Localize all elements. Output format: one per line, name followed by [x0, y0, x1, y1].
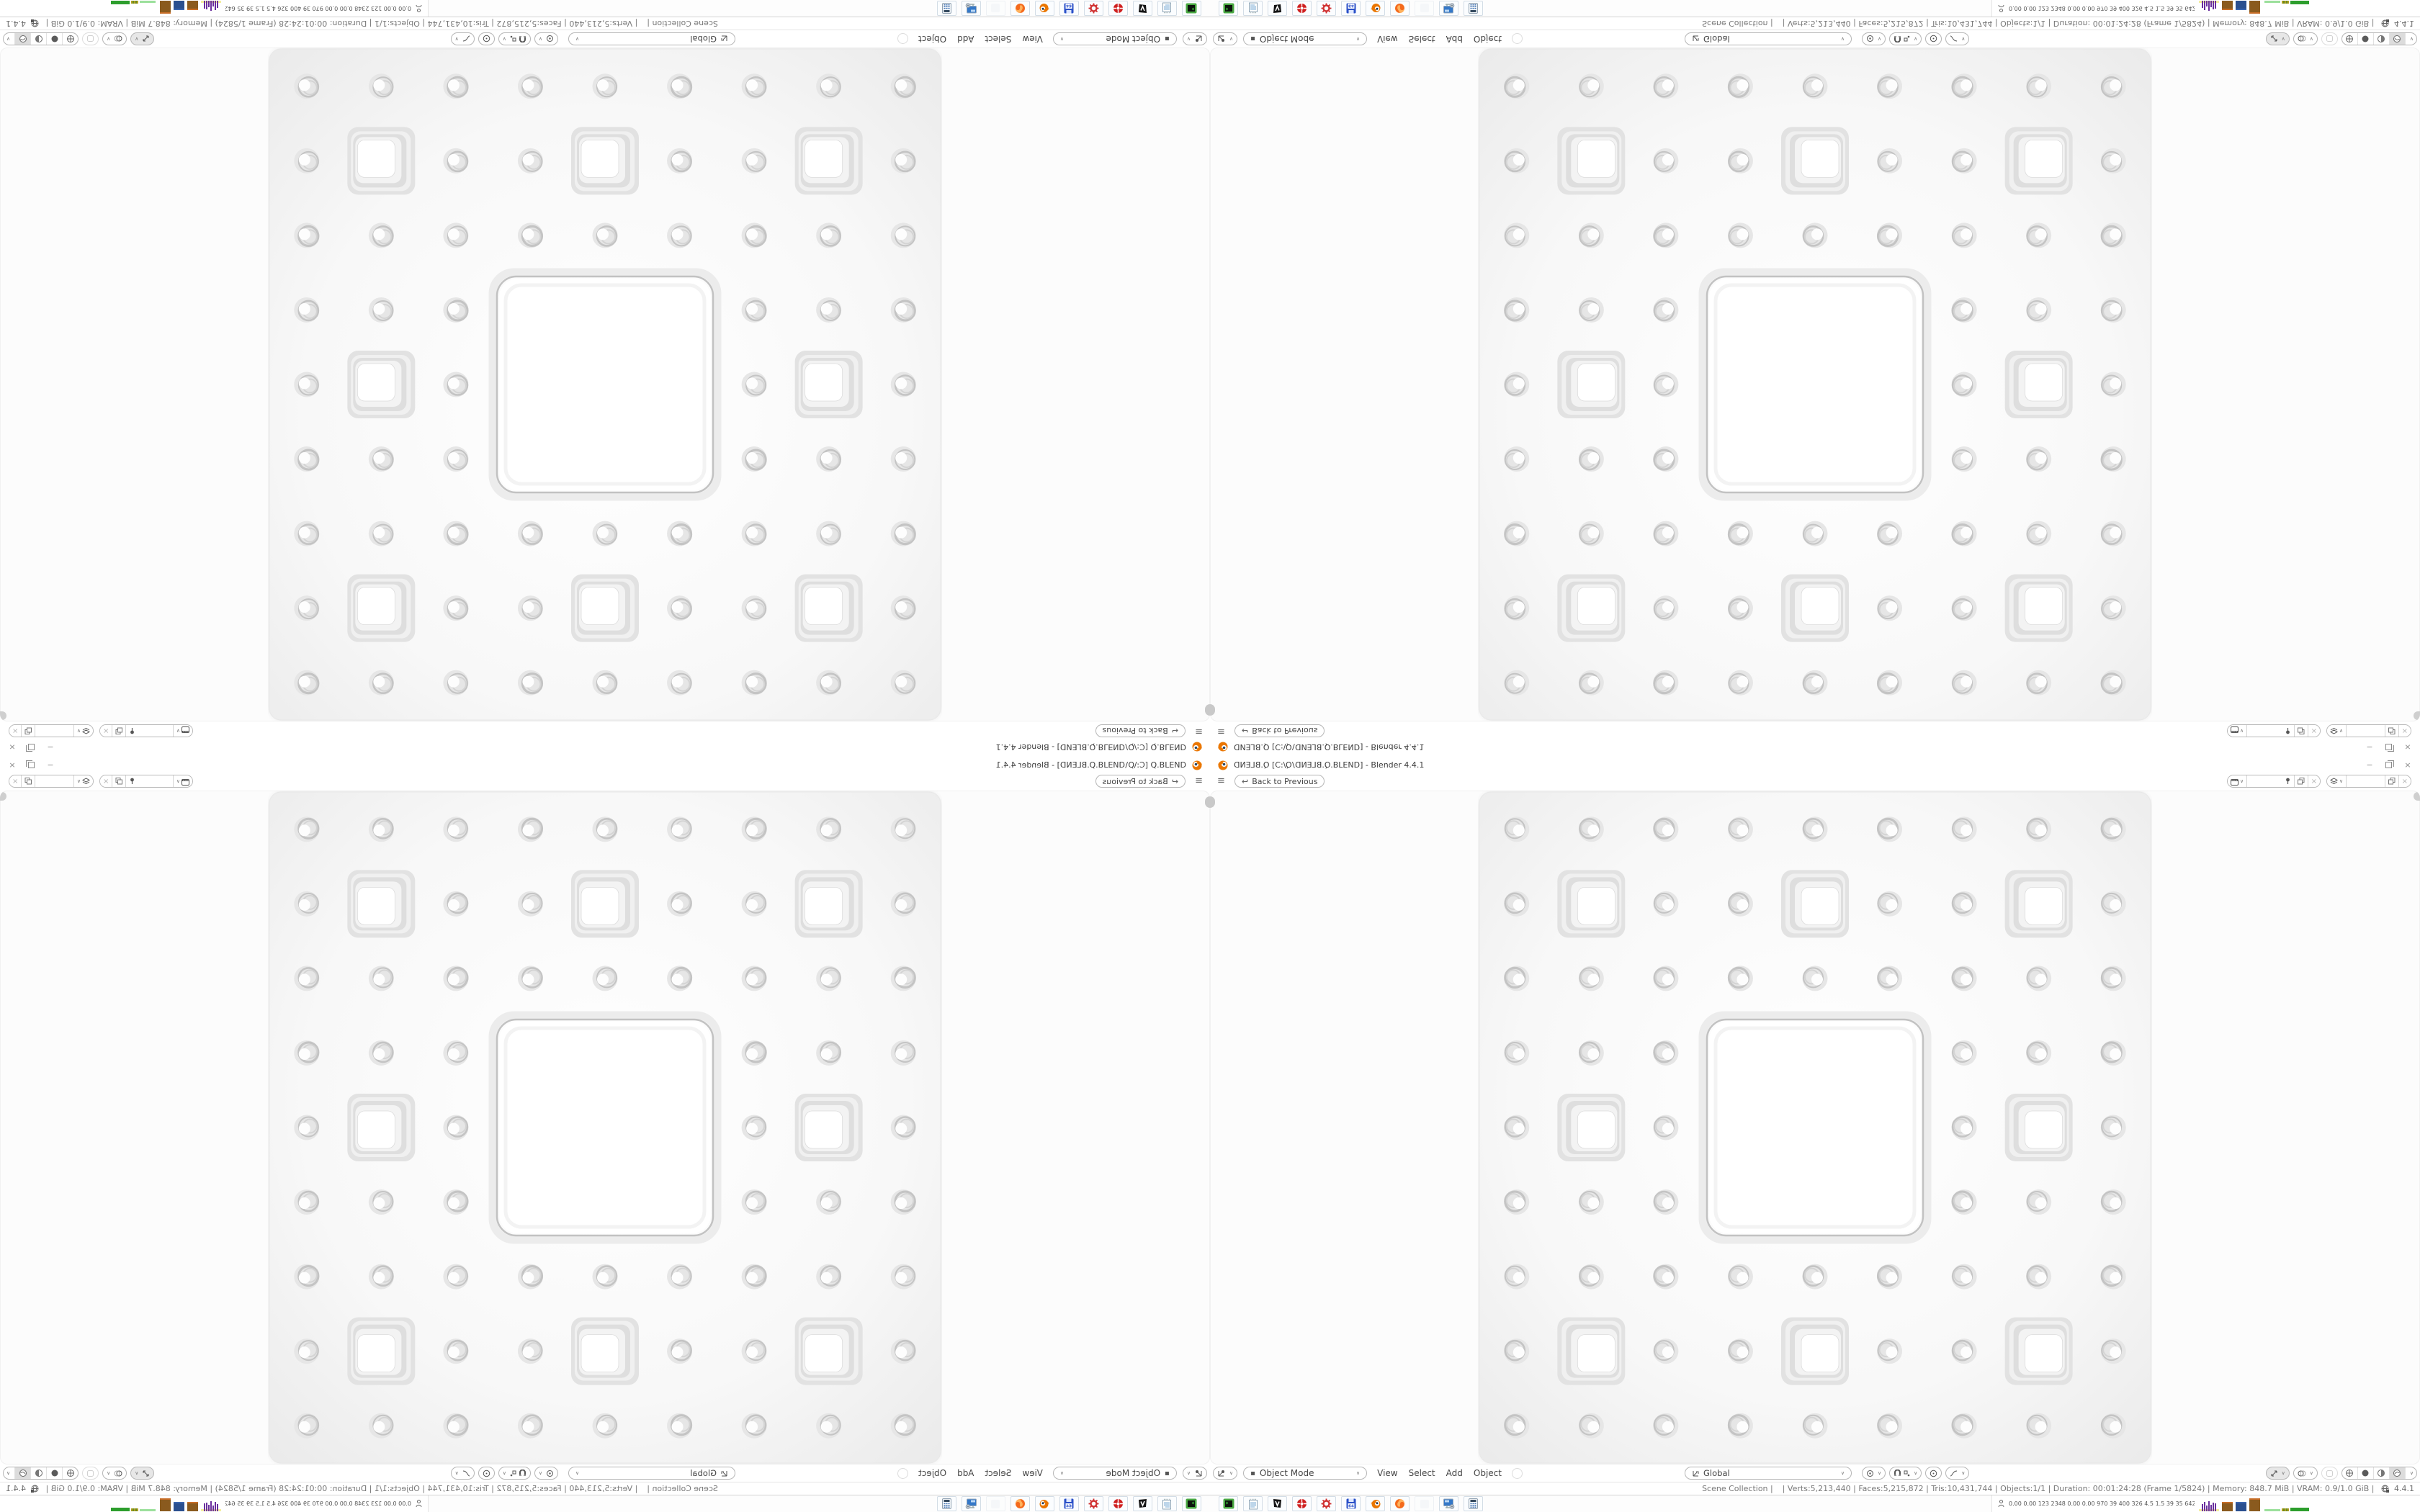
- taskbar-launcher-ghost[interactable]: [986, 1, 1005, 16]
- toolbar-collapse-handle[interactable]: [1205, 704, 1210, 716]
- shading-solid-button[interactable]: [2358, 1467, 2374, 1480]
- viewlayer-delete-button[interactable]: ×: [2399, 725, 2411, 737]
- proportional-editing-toggle[interactable]: [1925, 32, 1942, 45]
- taskbar-launcher-terminal[interactable]: [1219, 1, 1238, 16]
- taskbar-launcher-red-badge[interactable]: [1108, 1496, 1128, 1511]
- viewlayer-delete-button[interactable]: ×: [9, 775, 21, 787]
- mirrored-screenshot-composite: Q.BLEND [C:\Q\Q.BLEND.BLEND] - Blender 4…: [0, 0, 2420, 1512]
- viewlayer-copy-button[interactable]: [2385, 725, 2399, 737]
- mode-dropdown[interactable]: ▪ Object Mode ∨: [1053, 1467, 1177, 1480]
- title-dir-mirrored: Q: [1128, 743, 1134, 752]
- scene-selector: ∨ ×: [2227, 724, 2321, 737]
- 3d-viewport[interactable]: [0, 791, 1210, 1464]
- viewlayer-browse-button[interactable]: ∨: [73, 725, 93, 737]
- system-monitor-applet: 0.00 0.00 123 2348 0.00 0.00 970 39 400 …: [0, 1495, 429, 1512]
- viewlayer-browse-button[interactable]: ∨: [2327, 775, 2347, 787]
- proportional-falloff-dropdown[interactable]: ∨: [1945, 32, 1969, 45]
- viewlayer-icon: [82, 778, 90, 786]
- pivot-point-dropdown[interactable]: ∨: [1862, 32, 1886, 45]
- taskbar-launcher-calculator[interactable]: [1464, 1, 1483, 16]
- window-title: Q.BLEND [C:\Q\Q.BLEND.BLEND] - Blender 4…: [1234, 760, 1424, 770]
- sidebar-collapse-handle[interactable]: [2414, 792, 2420, 801]
- back-to-previous-button[interactable]: ↩ Back to Previous: [1234, 775, 1325, 788]
- scene-copy-button[interactable]: [112, 725, 125, 737]
- swap-bar: [174, 1, 184, 11]
- viewport-header: ∨ ▪ Object Mode ∨ View Select Add Object…: [1210, 1464, 2420, 1482]
- scene-browse-button[interactable]: ∨: [173, 725, 192, 737]
- snap-dropdown[interactable]: ∨: [498, 1467, 531, 1480]
- taskbar-launcher-floppy-64[interactable]: 64: [1341, 1496, 1361, 1511]
- snap-dropdown[interactable]: ∨: [498, 32, 531, 45]
- scene-icon: [181, 727, 189, 735]
- close-icon: ×: [103, 778, 109, 786]
- editor-type-button[interactable]: ∨: [1213, 1467, 1237, 1480]
- pivot-point-dropdown[interactable]: ∨: [534, 32, 558, 45]
- os-taskbar: 64 0.00 0.00 123 2348 0.00 0.00 970 39 4…: [1210, 1495, 2420, 1512]
- snap-target-icon: [510, 36, 516, 42]
- tool-circle-icon[interactable]: [897, 1468, 908, 1479]
- close-button[interactable]: ×: [2403, 743, 2413, 752]
- shading-rendered-button[interactable]: [14, 32, 30, 45]
- taskbar-launcher-notepad[interactable]: [1157, 1496, 1177, 1511]
- title-file2-mirrored: Q.BLEND: [1090, 760, 1125, 770]
- orientation-axis-icon: [1692, 1470, 1700, 1477]
- select-menu[interactable]: Select: [1409, 1468, 1435, 1478]
- blender-logo-icon: [1217, 759, 1229, 770]
- pivot-icon: [1866, 1470, 1874, 1477]
- scene-name-field[interactable]: [2247, 775, 2294, 787]
- show-overlays-dropdown[interactable]: ∨: [102, 1467, 127, 1480]
- minimize-button[interactable]: −: [45, 743, 55, 752]
- copy-icon: [24, 727, 32, 734]
- cpu-history-graph: [201, 1497, 221, 1511]
- viewlayer-name-field[interactable]: [35, 775, 73, 787]
- taskbar-launcher-notepad[interactable]: [1243, 1, 1263, 16]
- window-titlebar: Q.BLEND [C:\Q\Q.BLEND.BLEND] - Blender 4…: [1210, 756, 2420, 773]
- shading-material-button[interactable]: [2374, 1467, 2390, 1480]
- screen-copy-bottom-left: Q.BLEND [C:\Q\Q.BLEND.BLEND] - Blender 4…: [0, 756, 1210, 1512]
- taskbar-launcher-red-badge[interactable]: [1292, 1, 1312, 16]
- scene-delete-button[interactable]: ×: [2308, 725, 2320, 737]
- pin-icon[interactable]: [2285, 727, 2291, 734]
- shading-material-button[interactable]: [2374, 32, 2390, 45]
- screen-copy-bottom-right: Q.BLEND [C:\Q\Q.BLEND.BLEND] - Blender 4…: [1210, 756, 2420, 1512]
- show-overlays-dropdown[interactable]: ∨: [2293, 1467, 2318, 1480]
- user-icon: [416, 1500, 422, 1508]
- editor-type-button[interactable]: ∨: [1183, 32, 1207, 45]
- sidebar-collapse-handle[interactable]: [2414, 711, 2420, 720]
- viewlayer-copy-button[interactable]: [2385, 775, 2399, 787]
- 3d-viewport[interactable]: [1210, 791, 2420, 1464]
- add-menu[interactable]: Add: [1446, 1468, 1463, 1478]
- topbar-menu-icon[interactable]: ≡: [1217, 726, 1225, 737]
- scene-stats: | Verts:5,213,440 | Faces:5,215,872 | Tr…: [1780, 1484, 2377, 1493]
- mode-dropdown[interactable]: ▪ Object Mode ∨: [1243, 1467, 1367, 1480]
- snap-dropdown[interactable]: ∨: [1889, 1467, 1922, 1480]
- scene-copy-button[interactable]: [2295, 775, 2308, 787]
- close-icon: ×: [12, 727, 18, 735]
- network-globe-icon: [30, 19, 39, 28]
- close-button[interactable]: ×: [2403, 760, 2413, 770]
- viewport-header: ∨ ▪ Object Mode ∨ View Select Add Object…: [0, 1464, 1210, 1482]
- 3d-viewport[interactable]: [0, 48, 1210, 721]
- proportional-falloff-dropdown[interactable]: ∨: [451, 1467, 475, 1480]
- taskbar-launcher-terminal[interactable]: [1182, 1496, 1201, 1511]
- tool-circle-icon[interactable]: [897, 34, 908, 45]
- view-menu[interactable]: View: [1022, 34, 1042, 44]
- restore-button[interactable]: [28, 744, 35, 751]
- svg-text:64: 64: [1067, 3, 1072, 7]
- magnet-icon: [519, 1470, 526, 1477]
- falloff-curve-icon: [1950, 35, 1958, 43]
- scene-selector: ∨ ×: [2227, 775, 2321, 788]
- gizmo-icon: [142, 1470, 150, 1477]
- show-overlays-dropdown[interactable]: ∨: [102, 32, 127, 45]
- memory-bar: [2222, 1502, 2233, 1511]
- status-bar: Scene Collection | | Verts:5,213,440 | F…: [0, 17, 1210, 30]
- viewlayer-copy-button[interactable]: [21, 775, 35, 787]
- scene-name-field[interactable]: [125, 775, 172, 787]
- shading-rendered-button[interactable]: [2390, 1467, 2406, 1480]
- close-icon: ×: [2402, 727, 2408, 735]
- proportional-falloff-dropdown[interactable]: ∨: [1945, 1467, 1969, 1480]
- editor-type-button[interactable]: ∨: [1183, 1467, 1207, 1480]
- shading-mode-group: ∨: [2341, 1467, 2417, 1480]
- cpu-history-graph: [2199, 1497, 2219, 1511]
- scene-browse-button[interactable]: ∨: [2228, 775, 2247, 787]
- xray-icon: [2326, 1470, 2334, 1477]
- show-gizmo-dropdown[interactable]: ∨: [2266, 32, 2290, 45]
- shading-mode-group: ∨: [3, 1467, 79, 1480]
- select-menu[interactable]: Select: [1409, 34, 1435, 44]
- viewlayer-icon: [2330, 727, 2338, 735]
- select-menu[interactable]: Select: [985, 1468, 1011, 1478]
- viewlayer-delete-button[interactable]: ×: [9, 725, 21, 737]
- scene-name-field[interactable]: [125, 725, 172, 737]
- add-menu[interactable]: Add: [957, 1468, 974, 1478]
- magnet-icon: [1894, 1470, 1901, 1477]
- taskbar-launcher-calculator[interactable]: [937, 1, 956, 16]
- overlays-icon: [2298, 1470, 2306, 1477]
- monitor-graphs: [2199, 1497, 2309, 1511]
- restore-button[interactable]: [2385, 762, 2392, 768]
- 3d-viewport[interactable]: [1210, 48, 2420, 721]
- transform-orientation-dropdown[interactable]: Global ∨: [1685, 32, 1852, 45]
- blender-logo-icon: [1191, 742, 1203, 753]
- user-icon: [416, 4, 422, 12]
- disk-bar: [2249, 1, 2260, 14]
- active-collection-label: Scene Collection |: [1702, 1484, 1775, 1493]
- blender-topbar: ≡ ↩ Back to Previous ∨ ×: [1210, 721, 2420, 739]
- taskbar-launcher-display-settings[interactable]: [1439, 1, 1458, 16]
- object-menu[interactable]: Object: [1474, 1468, 1502, 1478]
- tool-circle-icon[interactable]: [1512, 1468, 1523, 1479]
- network-graph: [2264, 1497, 2309, 1511]
- disk-bar: [160, 1, 171, 14]
- scene-stats: | Verts:5,213,440 | Faces:5,215,872 | Tr…: [43, 19, 640, 28]
- gizmo-icon: [2270, 1470, 2278, 1477]
- object-menu[interactable]: Object: [918, 34, 946, 44]
- monitor-values: 0.00 0.00 123 2348 0.00 0.00 970 39 400 …: [2009, 5, 2195, 12]
- back-arrow-icon: ↩: [1242, 726, 1248, 736]
- taskbar-launcher-blender[interactable]: [1366, 1496, 1385, 1511]
- viewlayer-name-field[interactable]: [35, 725, 73, 737]
- orientation-axis-icon: [720, 1470, 728, 1477]
- transform-orientation-dropdown[interactable]: Global ∨: [568, 32, 735, 45]
- proportional-falloff-dropdown[interactable]: ∨: [451, 32, 475, 45]
- taskbar-launcher-ghost[interactable]: [1415, 1496, 1434, 1511]
- pivot-icon: [1866, 35, 1874, 43]
- snap-target-icon: [1904, 1470, 1910, 1477]
- viewlayer-selector: ∨ ×: [9, 724, 94, 737]
- close-icon: ×: [2311, 778, 2317, 786]
- restore-button[interactable]: [28, 762, 35, 768]
- shading-solid-button[interactable]: [2358, 32, 2374, 45]
- swap-bar: [174, 1502, 184, 1511]
- transform-orientation-dropdown[interactable]: Global ∨: [1685, 1467, 1852, 1480]
- shading-solid-button[interactable]: [46, 32, 62, 45]
- taskbar-launcher-ghost[interactable]: [986, 1496, 1005, 1511]
- viewlayer-delete-button[interactable]: ×: [2399, 775, 2411, 787]
- back-to-previous-button[interactable]: ↩ Back to Previous: [1095, 775, 1186, 788]
- snap-dropdown[interactable]: ∨: [1889, 32, 1922, 45]
- minimize-button[interactable]: −: [45, 760, 55, 770]
- minimize-button[interactable]: −: [2365, 743, 2375, 752]
- scene-delete-button[interactable]: ×: [100, 725, 112, 737]
- taskbar-launcher-firefox[interactable]: [1390, 1, 1410, 16]
- menger-sponge-render: [1478, 48, 2152, 721]
- show-gizmo-dropdown[interactable]: ∨: [130, 1467, 154, 1480]
- xray-toggle[interactable]: [2321, 1467, 2338, 1480]
- editor-3d-viewport-icon: [1194, 1469, 1203, 1477]
- monitor-graphs: [111, 1, 221, 16]
- view-menu[interactable]: View: [1377, 34, 1397, 44]
- back-arrow-icon: ↩: [1242, 777, 1248, 786]
- show-gizmo-dropdown[interactable]: ∨: [2266, 1467, 2290, 1480]
- proportional-circle-icon: [1930, 1470, 1937, 1477]
- xray-toggle[interactable]: [82, 32, 99, 45]
- proportional-circle-icon: [483, 1470, 490, 1477]
- network-globe-icon: [30, 1485, 39, 1493]
- window-titlebar: Q.BLEND [C:\Q\Q.BLEND.BLEND] - Blender 4…: [0, 739, 1210, 756]
- pin-icon[interactable]: [129, 727, 135, 734]
- shading-wireframe-button[interactable]: [2342, 1467, 2358, 1480]
- taskbar-launcher-notepad[interactable]: [1243, 1496, 1263, 1511]
- shading-wireframe-button[interactable]: [62, 32, 78, 45]
- menger-sponge-render: [268, 48, 942, 721]
- sidebar-collapse-handle[interactable]: [0, 792, 6, 801]
- sidebar-collapse-handle[interactable]: [0, 711, 6, 720]
- blender-logo-icon: [1191, 759, 1203, 770]
- mode-dropdown[interactable]: ▪ Object Mode ∨: [1243, 32, 1367, 45]
- scene-browse-button[interactable]: ∨: [2228, 725, 2247, 737]
- taskbar-launcher-red-badge[interactable]: [1108, 1, 1128, 16]
- object-menu[interactable]: Object: [1474, 34, 1502, 44]
- back-to-previous-button[interactable]: ↩ Back to Previous: [1095, 724, 1186, 737]
- viewlayer-selector: ∨ ×: [2326, 724, 2411, 737]
- taskbar-launcher-ghost[interactable]: [1415, 1, 1434, 16]
- shading-mode-group: ∨: [3, 32, 79, 45]
- taskbar-launcher-media-player[interactable]: [1268, 1, 1287, 16]
- transform-orientation-dropdown[interactable]: Global ∨: [568, 1467, 735, 1480]
- blender-version: 4.4.1: [6, 1484, 26, 1493]
- proportional-circle-icon: [1930, 35, 1937, 43]
- back-arrow-icon: ↩: [1172, 726, 1178, 736]
- mode-dropdown[interactable]: ▪ Object Mode ∨: [1053, 32, 1177, 45]
- blender-version: 4.4.1: [2394, 19, 2414, 28]
- proportional-editing-toggle[interactable]: [478, 32, 495, 45]
- overlays-icon: [2298, 35, 2306, 43]
- taskbar-launcher-calculator[interactable]: [1464, 1496, 1483, 1511]
- user-icon: [1998, 4, 2004, 12]
- editor-type-button[interactable]: ∨: [1213, 32, 1237, 45]
- taskbar-launcher-floppy-64[interactable]: 64: [1341, 1, 1361, 16]
- disk-bar: [2249, 1498, 2260, 1511]
- blender-logo-icon: [1217, 742, 1229, 753]
- status-bar: Scene Collection | | Verts:5,213,440 | F…: [1210, 1482, 2420, 1495]
- close-icon: ×: [2402, 778, 2408, 786]
- add-menu[interactable]: Add: [1446, 34, 1463, 44]
- taskbar-launcher-blender[interactable]: [1366, 1, 1385, 16]
- scene-delete-button[interactable]: ×: [100, 775, 112, 787]
- show-overlays-dropdown[interactable]: ∨: [2293, 32, 2318, 45]
- topbar-menu-icon[interactable]: ≡: [1195, 775, 1203, 786]
- taskbar-launcher-red-gear[interactable]: [1317, 1, 1336, 16]
- taskbar-launcher-display-settings[interactable]: [962, 1, 981, 16]
- object-mode-icon: ▪: [1165, 1470, 1170, 1477]
- view-menu[interactable]: View: [1022, 1468, 1042, 1478]
- taskbar-launcher-red-gear[interactable]: [1317, 1496, 1336, 1511]
- shading-solid-button[interactable]: [46, 1467, 62, 1480]
- minimize-button[interactable]: −: [2365, 760, 2375, 770]
- scene-copy-button[interactable]: [2295, 725, 2308, 737]
- overlays-icon: [114, 35, 122, 43]
- taskbar-launcher-terminal[interactable]: [1182, 1, 1201, 16]
- toolbar-collapse-handle[interactable]: [1210, 796, 1215, 808]
- taskbar-launcher-blender[interactable]: [1035, 1, 1054, 16]
- taskbar-launcher-floppy-64[interactable]: 64: [1059, 1, 1079, 16]
- topbar-menu-icon[interactable]: ≡: [1217, 775, 1225, 786]
- taskbar-launcher-display-settings[interactable]: [1439, 1496, 1458, 1511]
- magnet-icon: [519, 35, 526, 43]
- screen-copy-top-right: Q.BLEND [C:\Q\Q.BLEND.BLEND] - Blender 4…: [1210, 0, 2420, 756]
- network-globe-icon: [2381, 1485, 2390, 1493]
- select-menu[interactable]: Select: [985, 34, 1011, 44]
- shading-wireframe-button[interactable]: [2342, 32, 2358, 45]
- scene-copy-button[interactable]: [112, 775, 125, 787]
- taskbar-launcher-firefox[interactable]: [1010, 1496, 1030, 1511]
- title-dir-mirrored: Q: [1128, 760, 1134, 770]
- taskbar-launcher-floppy-64[interactable]: 64: [1059, 1496, 1079, 1511]
- title-filename-mirrored: Q.BLEND: [1151, 743, 1186, 752]
- svg-text:64: 64: [1067, 1505, 1072, 1509]
- pivot-point-dropdown[interactable]: ∨: [534, 1467, 558, 1480]
- title-filename-mirrored: Q.BLEND: [1234, 760, 1269, 770]
- taskbar-launcher-red-badge[interactable]: [1292, 1496, 1312, 1511]
- proportional-editing-toggle[interactable]: [478, 1467, 495, 1480]
- shading-material-button[interactable]: [30, 1467, 46, 1480]
- proportional-editing-toggle[interactable]: [1925, 1467, 1942, 1480]
- user-icon: [1998, 1500, 2004, 1508]
- object-mode-icon: ▪: [1250, 35, 1255, 43]
- show-gizmo-dropdown[interactable]: ∨: [130, 32, 154, 45]
- taskbar-launcher-firefox[interactable]: [1010, 1, 1030, 16]
- shading-material-button[interactable]: [30, 32, 46, 45]
- monitor-graphs: [2199, 1, 2309, 16]
- cpu-history-graph: [201, 1, 221, 16]
- viewlayer-browse-button[interactable]: ∨: [2327, 725, 2347, 737]
- copy-icon: [2388, 778, 2396, 785]
- gizmo-icon: [142, 35, 150, 43]
- memory-bar: [187, 1, 198, 11]
- taskbar-launcher-display-settings[interactable]: [962, 1496, 981, 1511]
- viewlayer-name-field[interactable]: [2347, 775, 2385, 787]
- toolbar-collapse-handle[interactable]: [1210, 704, 1215, 716]
- xray-toggle[interactable]: [82, 1467, 99, 1480]
- shading-rendered-button[interactable]: [14, 1467, 30, 1480]
- gizmo-icon: [2270, 35, 2278, 43]
- viewlayer-icon: [82, 727, 90, 735]
- viewlayer-copy-button[interactable]: [21, 725, 35, 737]
- taskbar-launcher-firefox[interactable]: [1390, 1496, 1410, 1511]
- pivot-icon: [546, 35, 554, 43]
- scene-name-field[interactable]: [2247, 725, 2294, 737]
- swap-bar: [2236, 1502, 2246, 1511]
- close-button[interactable]: ×: [7, 760, 17, 770]
- snap-target-icon: [510, 1470, 516, 1477]
- taskbar-launcher-calculator[interactable]: [937, 1496, 956, 1511]
- scene-delete-button[interactable]: ×: [2308, 775, 2320, 787]
- tool-circle-icon[interactable]: [1512, 34, 1523, 45]
- pivot-point-dropdown[interactable]: ∨: [1862, 1467, 1886, 1480]
- taskbar-launcher-terminal[interactable]: [1219, 1496, 1238, 1511]
- screen-copy-top-left: Q.BLEND [C:\Q\Q.BLEND.BLEND] - Blender 4…: [0, 0, 1210, 756]
- viewlayer-name-field[interactable]: [2347, 725, 2385, 737]
- window-titlebar: Q.BLEND [C:\Q\Q.BLEND.BLEND] - Blender 4…: [1210, 739, 2420, 756]
- pin-icon[interactable]: [129, 778, 135, 785]
- taskbar-launcher-media-player[interactable]: [1133, 1496, 1152, 1511]
- pin-icon[interactable]: [2285, 778, 2291, 785]
- taskbar-launcher-notepad[interactable]: [1157, 1, 1177, 16]
- window-title: Q.BLEND [C:\Q\Q.BLEND.BLEND] - Blender 4…: [996, 760, 1186, 770]
- taskbar-launcher-media-player[interactable]: [1268, 1496, 1287, 1511]
- cpu-history-graph: [2199, 1, 2219, 16]
- svg-text:64: 64: [1348, 3, 1354, 7]
- copy-icon: [2298, 778, 2305, 785]
- back-to-previous-button[interactable]: ↩ Back to Previous: [1234, 724, 1325, 737]
- viewlayer-browse-button[interactable]: ∨: [73, 775, 93, 787]
- taskbar-launcher-red-gear[interactable]: [1084, 1, 1103, 16]
- taskbar-launcher-blender[interactable]: [1035, 1496, 1054, 1511]
- shading-rendered-button[interactable]: [2390, 32, 2406, 45]
- monitor-graphs: [111, 1497, 221, 1511]
- toolbar-collapse-handle[interactable]: [1205, 796, 1210, 808]
- add-menu[interactable]: Add: [957, 34, 974, 44]
- shading-wireframe-button[interactable]: [62, 1467, 78, 1480]
- view-menu[interactable]: View: [1377, 1468, 1397, 1478]
- system-monitor-applet: 0.00 0.00 123 2348 0.00 0.00 970 39 400 …: [1991, 1495, 2420, 1512]
- topbar-menu-icon[interactable]: ≡: [1195, 726, 1203, 737]
- close-button[interactable]: ×: [7, 743, 17, 752]
- taskbar-launcher-media-player[interactable]: [1133, 1, 1152, 16]
- taskbar-launcher-red-gear[interactable]: [1084, 1496, 1103, 1511]
- scene-browse-button[interactable]: ∨: [173, 775, 192, 787]
- object-menu[interactable]: Object: [918, 1468, 946, 1478]
- close-icon: ×: [103, 727, 109, 735]
- window-controls: − ×: [7, 743, 55, 752]
- xray-toggle[interactable]: [2321, 32, 2338, 45]
- restore-button[interactable]: [2385, 744, 2392, 751]
